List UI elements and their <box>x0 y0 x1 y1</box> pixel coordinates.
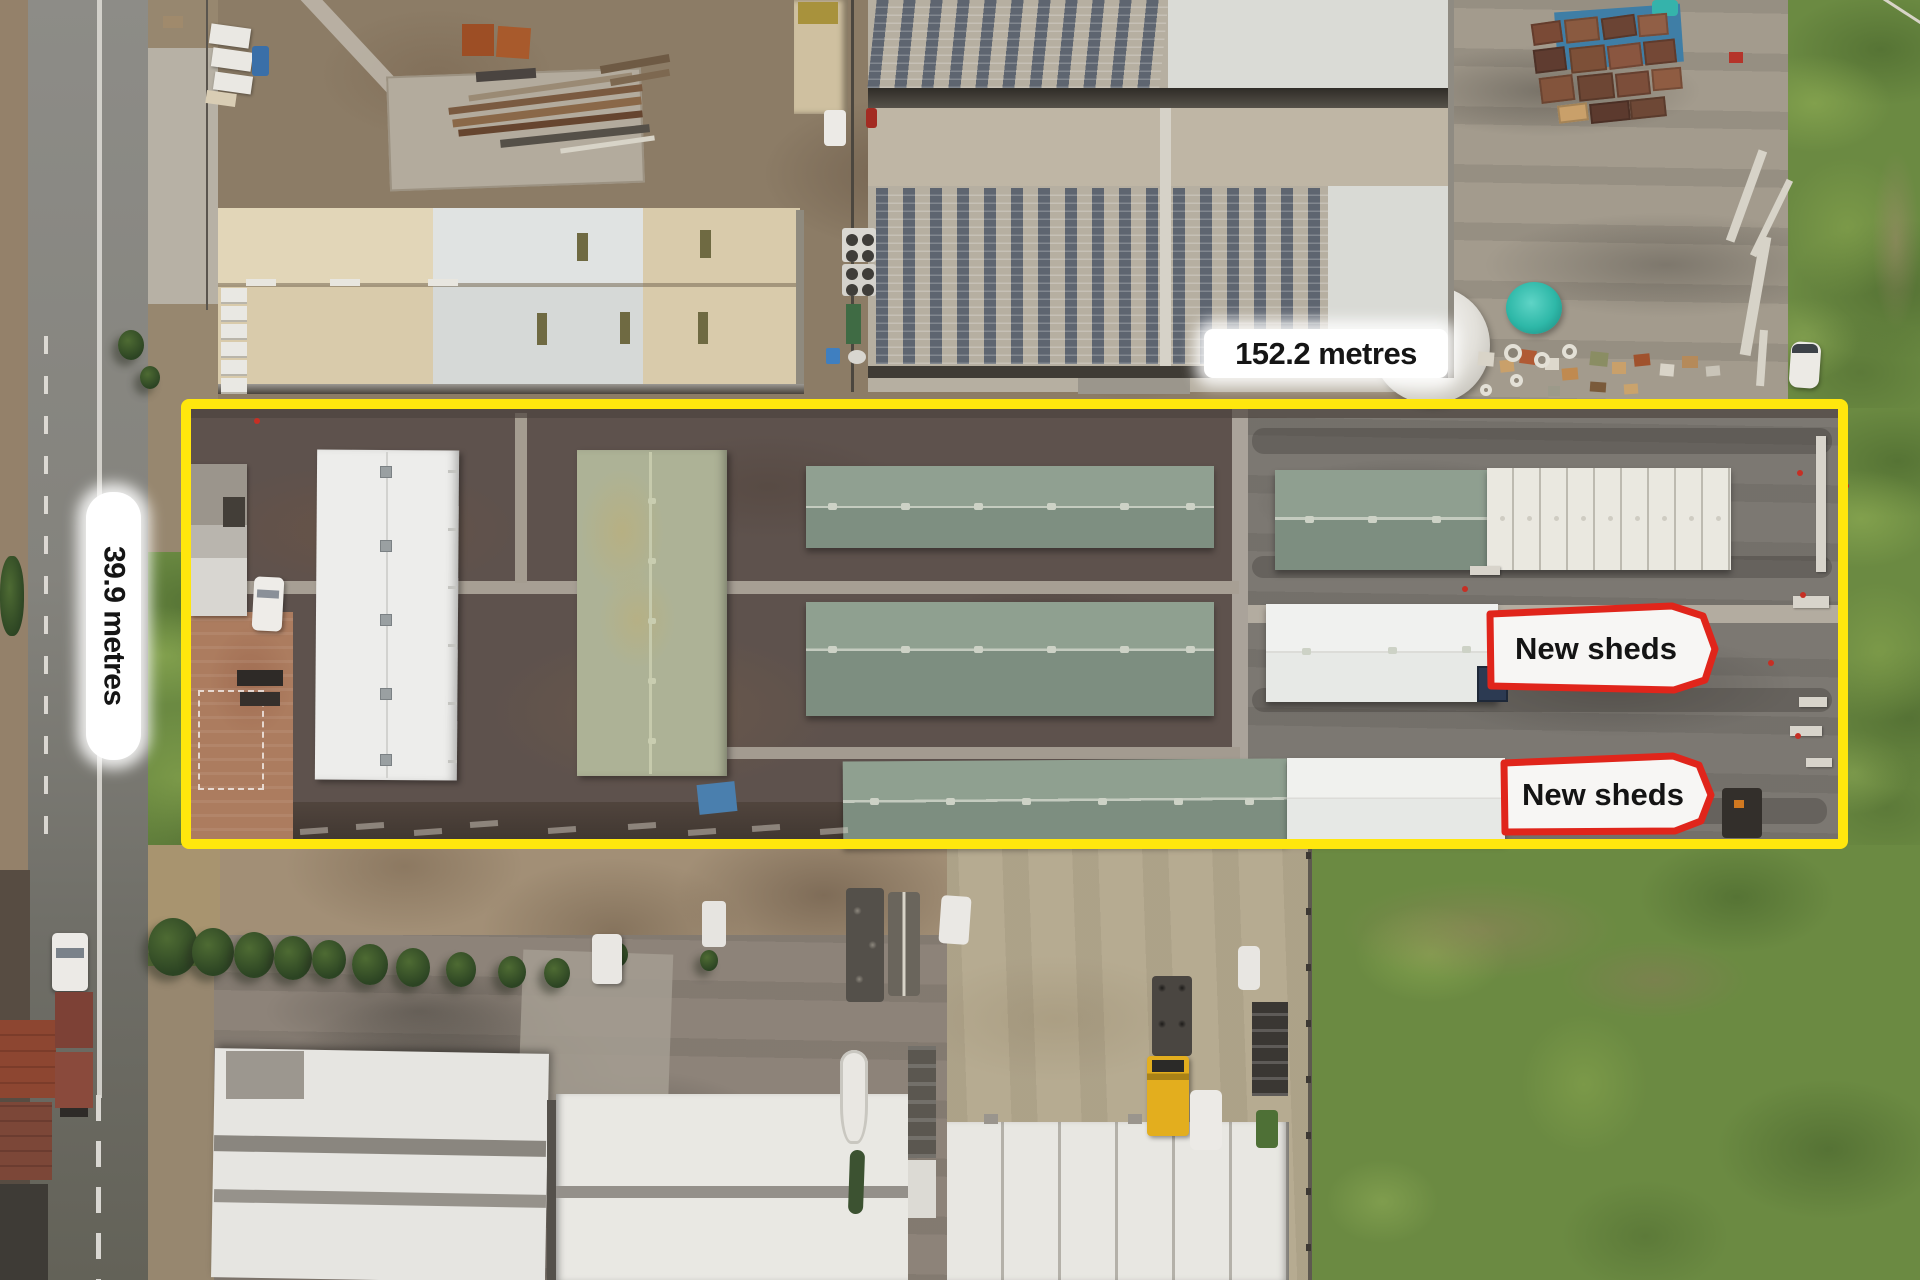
fence-post <box>1306 964 1311 971</box>
pallet-top-left <box>163 16 183 28</box>
rust-plate <box>496 26 531 59</box>
road-dash-centre <box>96 1095 101 1121</box>
yard-crate <box>1562 367 1579 380</box>
pickup-white-1 <box>592 934 622 984</box>
machinery-2 <box>888 892 920 996</box>
tree <box>118 330 144 360</box>
warehouse-southeast <box>947 1122 1289 1280</box>
tree <box>192 928 234 976</box>
cream-roof-ridge <box>218 283 800 287</box>
red-car-gap <box>866 108 877 128</box>
concrete-ring <box>1510 374 1523 387</box>
grass-right-of-lot <box>1846 408 1920 852</box>
roadside-bush-1 <box>0 556 24 636</box>
road-dash-centre <box>96 1187 101 1213</box>
truck-windshield <box>56 948 84 958</box>
yard-crate <box>1660 363 1675 376</box>
new-sheds-callout-1: New sheds <box>1482 600 1724 696</box>
skylight-panel <box>221 378 247 394</box>
road-dash-edge <box>44 496 48 514</box>
pallet-crate <box>1601 14 1638 41</box>
pallet-crate <box>1539 74 1576 104</box>
width-dimension-text: 152.2 metres <box>1235 336 1417 372</box>
pallet-crate <box>1607 42 1644 70</box>
road-dash-edge <box>44 376 48 394</box>
pallet-crate <box>1637 13 1669 38</box>
green-equipment <box>846 304 861 344</box>
tree <box>312 940 346 979</box>
concrete-ring <box>1504 344 1522 362</box>
fence-post <box>1306 852 1311 859</box>
yard-crate <box>1612 362 1626 374</box>
seed-drill <box>1252 1002 1288 1096</box>
caravan-front <box>1792 344 1818 353</box>
width-dimension-label: 152.2 metres <box>1204 329 1448 378</box>
solar-roof-top-section <box>867 0 1168 88</box>
cream-roof-upper-slope <box>218 208 433 285</box>
hvac-fan <box>846 250 858 262</box>
aerial-photo: 152.2 metres 39.9 metres New sheds New s… <box>0 0 1920 1280</box>
pallet-crate <box>1629 96 1667 120</box>
small-white-tank <box>848 350 866 364</box>
skylight-panel <box>221 324 247 340</box>
fence-post <box>1306 1020 1311 1027</box>
pallet-crate <box>1533 46 1568 74</box>
warehouse-se-vent-1 <box>984 1114 998 1124</box>
red-roof-building-1 <box>0 1020 56 1098</box>
white-van-gap <box>824 110 846 146</box>
pallet-crate <box>1615 70 1651 97</box>
truck-chassis <box>1152 976 1192 1056</box>
solar-building-east-wall <box>1448 0 1454 378</box>
road-dash-edge <box>44 616 48 634</box>
tree <box>498 956 526 988</box>
trailer-white-top <box>908 1160 936 1218</box>
yard-crate <box>1548 386 1560 396</box>
tree <box>148 918 198 976</box>
truck-trailer-2 <box>55 1052 93 1108</box>
green-tractor <box>1256 1110 1278 1148</box>
rust-plate <box>462 24 494 56</box>
pallet-crate <box>1569 44 1608 74</box>
white-roof-top-right <box>1168 0 1448 88</box>
tree <box>352 944 388 985</box>
height-dimension-label: 39.9 metres <box>86 492 141 760</box>
ridge-rail <box>246 279 276 286</box>
hvac-fan <box>846 268 858 280</box>
truck-wheels <box>60 1108 88 1117</box>
cream-building-eave-shadow <box>218 384 804 394</box>
fence-post <box>1306 1188 1311 1195</box>
tree <box>396 948 430 987</box>
hvac-fan <box>862 250 874 262</box>
teal-tank <box>1506 282 1562 334</box>
gap-yellow-roof <box>798 2 838 24</box>
tree <box>446 952 476 987</box>
ridge-rail <box>330 279 360 286</box>
grass-dry-patch-topright <box>1872 150 1920 330</box>
red-roof-building-2 <box>0 1102 52 1180</box>
road-dash-edge <box>44 816 48 834</box>
solar-roof-mid-plain <box>868 108 1448 186</box>
tree <box>140 366 160 389</box>
hvac-fan <box>862 268 874 280</box>
fence-post <box>1306 1076 1311 1083</box>
road-dash-edge <box>44 696 48 714</box>
blue-truck <box>252 46 269 76</box>
fence-top-left <box>206 0 208 310</box>
road-dash-edge <box>44 736 48 754</box>
pallet-crate <box>1651 67 1683 92</box>
yard-crate <box>1682 356 1698 368</box>
new-sheds-callout-2-text: New sheds <box>1522 777 1684 812</box>
canoe <box>848 1150 865 1214</box>
tree <box>544 958 570 988</box>
yard-crate <box>1590 381 1607 392</box>
skylight-panel <box>221 360 247 376</box>
pickup-white-2 <box>702 901 726 947</box>
cream-building-white-section <box>433 208 643 388</box>
boat <box>840 1050 868 1144</box>
road-dash-edge <box>44 776 48 794</box>
roof-vent <box>537 313 547 345</box>
warehouse-sw-vent-housing <box>226 1051 304 1099</box>
tree <box>274 936 312 980</box>
height-dimension-text: 39.9 metres <box>97 546 131 706</box>
road-dash-edge <box>44 336 48 354</box>
skylight-panel <box>221 342 247 358</box>
skylight-panel <box>221 288 247 304</box>
hvac-fan <box>846 234 858 246</box>
solar-building-eave-band <box>868 88 1448 108</box>
grass-dirt-patch-2 <box>1560 940 1750 1020</box>
blue-crate <box>826 348 840 364</box>
concrete-ring <box>1480 384 1492 396</box>
road-dash-edge <box>44 416 48 434</box>
pallet-crate <box>1531 20 1564 46</box>
skylight-panel <box>221 306 247 322</box>
fence-post <box>1306 1244 1311 1251</box>
pallet-crate <box>1577 72 1616 102</box>
trailer-stack <box>908 1046 936 1158</box>
red-item-pallets <box>1729 52 1743 63</box>
road-dash-centre <box>96 1233 101 1259</box>
yard-crate <box>1477 351 1494 366</box>
yard-crate <box>1589 351 1608 367</box>
pallet-crate <box>1643 38 1677 65</box>
pallet-crate <box>1589 100 1631 124</box>
truck-trailer-1 <box>55 992 93 1048</box>
fence-post <box>1306 908 1311 915</box>
yard-crate <box>1706 365 1721 376</box>
dark-building-left <box>0 1184 48 1280</box>
pallet-crate <box>1564 16 1600 43</box>
road-dash-edge <box>44 456 48 474</box>
concrete-ring <box>1562 344 1577 359</box>
roof-vent <box>700 230 711 258</box>
roof-vent <box>620 312 630 344</box>
road-dash-edge <box>44 536 48 554</box>
hvac-fan <box>862 234 874 246</box>
white-van-bottom <box>1190 1090 1222 1150</box>
new-sheds-callout-2: New sheds <box>1497 752 1721 838</box>
solar-roof-gutter <box>1160 108 1171 366</box>
pallet-crate <box>1557 102 1589 124</box>
road-dash-edge <box>44 576 48 594</box>
fence-post <box>1306 1132 1311 1139</box>
roof-vent <box>577 233 588 261</box>
warehouse-se-vent-2 <box>1128 1114 1142 1124</box>
ridge-rail <box>428 279 458 286</box>
tree <box>234 932 274 978</box>
yard-crate <box>1633 353 1650 367</box>
road-dash-edge <box>44 656 48 674</box>
yellow-truck-window <box>1152 1060 1184 1072</box>
hvac-fan <box>846 284 858 296</box>
car-white-small <box>1238 946 1260 990</box>
cream-building-east-wall <box>796 210 804 388</box>
yard-crate <box>1624 384 1639 395</box>
pickup-white-3 <box>938 895 971 945</box>
truck-cab <box>52 933 88 991</box>
new-sheds-callout-1-text: New sheds <box>1515 631 1677 666</box>
tree <box>700 950 718 971</box>
road-dash-centre <box>96 1141 101 1167</box>
machinery-1 <box>846 888 884 1002</box>
hvac-fan <box>862 284 874 296</box>
roof-vent <box>698 312 708 344</box>
concrete-ring <box>1534 352 1550 368</box>
